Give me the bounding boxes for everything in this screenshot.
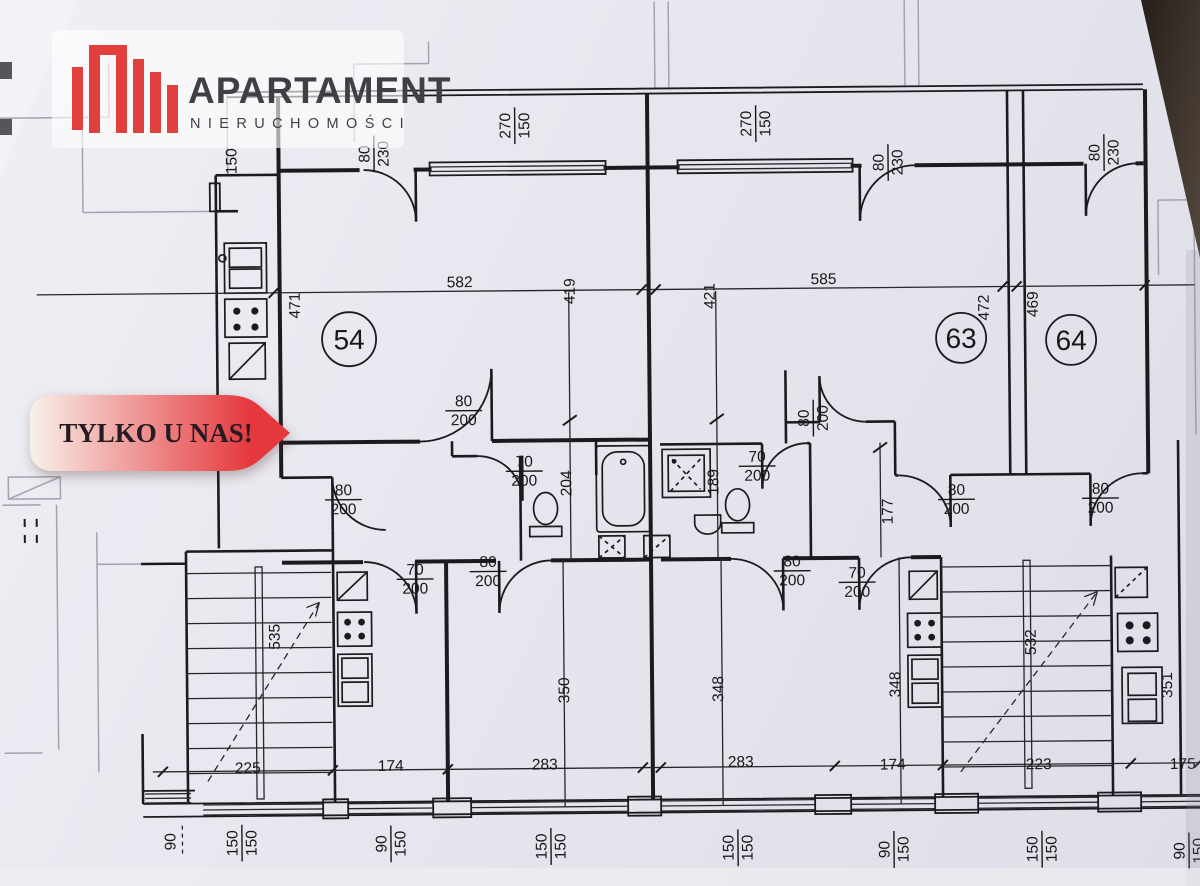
dim-label: 283	[532, 756, 558, 773]
logo-subtitle: NIERUCHOMOŚCI	[190, 114, 411, 132]
svg-text:80: 80	[783, 553, 801, 570]
svg-text:270: 270	[738, 110, 755, 136]
fixtures	[219, 235, 1163, 731]
door-80x200-lower-midright	[731, 558, 783, 610]
dim-label: 80200	[796, 400, 832, 437]
svg-text:283: 283	[532, 756, 558, 773]
svg-text:535: 535	[267, 624, 284, 650]
dim-label: 70200	[839, 565, 876, 601]
dim-label: 283	[728, 754, 754, 771]
dim-label: 80200	[1082, 480, 1119, 516]
svg-text:350: 350	[556, 677, 573, 703]
svg-text:225: 225	[235, 760, 261, 777]
logo: APARTAMENT NIERUCHOMOŚCI	[52, 30, 452, 148]
room-circle-64: 64	[1046, 315, 1096, 365]
svg-text:469: 469	[1025, 291, 1042, 317]
svg-text:472: 472	[976, 295, 993, 321]
scan-shadow-edge	[1186, 250, 1200, 886]
svg-text:419: 419	[562, 278, 579, 304]
svg-text:421: 421	[702, 283, 719, 309]
svg-text:582: 582	[447, 274, 473, 291]
svg-text:348: 348	[710, 676, 727, 702]
svg-text:80: 80	[335, 482, 353, 499]
svg-text:200: 200	[744, 468, 770, 485]
dim-label: 150150	[720, 829, 756, 866]
door-80x230-mid	[860, 165, 915, 220]
svg-text:150: 150	[895, 836, 912, 862]
svg-text:200: 200	[511, 473, 537, 490]
dim-label: 70200	[739, 448, 776, 484]
dim-label: 535	[267, 624, 284, 650]
paper-bottom-edge	[0, 868, 1200, 886]
dim-label: 177	[879, 498, 896, 524]
svg-text:80: 80	[870, 153, 887, 171]
dim-label: 90150	[373, 825, 409, 862]
svg-text:174: 174	[378, 758, 404, 775]
dim-label: 348	[887, 671, 904, 697]
svg-text:150: 150	[533, 833, 550, 859]
svg-text:150: 150	[720, 835, 737, 861]
svg-text:70: 70	[515, 454, 533, 471]
dim-label: 150	[223, 148, 240, 174]
dim-label: 270150	[497, 107, 533, 144]
svg-text:150: 150	[392, 830, 409, 856]
dim-label: 90150	[876, 831, 912, 868]
badge-text: TYLKO U NAS!	[59, 418, 253, 448]
dim-label: 469	[1025, 291, 1042, 317]
window-270x150-left	[430, 161, 606, 176]
room-number-63: 63	[945, 323, 976, 354]
dim-label: 80200	[325, 482, 362, 518]
dim-label: 80200	[445, 393, 482, 429]
svg-text:80: 80	[1086, 144, 1103, 162]
dim-label: 80230	[1086, 134, 1122, 171]
room-number-64: 64	[1055, 325, 1086, 356]
svg-text:270: 270	[497, 112, 514, 138]
svg-text:200: 200	[475, 573, 501, 590]
doors	[330, 163, 1144, 614]
svg-text:150: 150	[1024, 836, 1041, 862]
room-number-54: 54	[333, 324, 364, 355]
window-270x150-right	[678, 159, 853, 174]
svg-text:70: 70	[406, 562, 424, 579]
svg-text:230: 230	[1105, 139, 1122, 165]
logo-title: APARTAMENT	[188, 70, 452, 111]
svg-text:230: 230	[889, 149, 906, 175]
svg-text:348: 348	[887, 671, 904, 697]
svg-text:150: 150	[552, 833, 569, 859]
svg-text:283: 283	[728, 754, 754, 771]
svg-text:223: 223	[1026, 756, 1052, 773]
svg-text:471: 471	[287, 293, 304, 319]
dim-label: 174	[378, 758, 404, 775]
svg-text:150: 150	[224, 830, 241, 856]
dim-label: 204	[558, 470, 575, 496]
promo-badge: TYLKO U NAS!	[18, 385, 328, 495]
dim-label: 150150	[533, 828, 569, 865]
svg-text:150: 150	[1043, 836, 1060, 862]
bottom-wall	[143, 782, 1200, 820]
svg-text:150: 150	[223, 148, 240, 174]
dim-label: 585	[811, 271, 837, 288]
dim-label: 348	[710, 676, 727, 702]
dim-label: 80200	[938, 482, 975, 518]
dim-label: 189	[705, 469, 722, 495]
dim-label: 150150	[224, 825, 260, 862]
dim-label: 223	[1026, 756, 1052, 773]
dim-label: 174	[880, 756, 906, 773]
svg-text:70: 70	[748, 449, 766, 466]
scan-shadow-corner	[1141, 0, 1200, 258]
svg-text:80: 80	[948, 482, 966, 499]
room-circle-54: 54	[322, 312, 376, 366]
svg-text:150: 150	[243, 830, 260, 856]
svg-text:200: 200	[451, 412, 477, 429]
svg-text:150: 150	[739, 834, 756, 860]
kitchen-lower-right	[907, 571, 942, 707]
dim-label: 70200	[397, 561, 434, 597]
dim-label: 532	[1023, 629, 1040, 655]
dim-label: 270150	[738, 105, 774, 142]
windows-top	[210, 159, 853, 212]
dim-label: 150150	[1024, 831, 1060, 868]
kitchen-54	[219, 243, 268, 379]
svg-text:150: 150	[757, 110, 774, 136]
dim-label: 350	[556, 677, 573, 703]
kitchen-64	[1115, 567, 1162, 723]
dim-label: 421	[702, 283, 719, 309]
door-80x230-left	[364, 170, 416, 222]
svg-text:150: 150	[516, 112, 533, 138]
svg-text:189: 189	[705, 469, 722, 495]
svg-text:532: 532	[1023, 629, 1040, 655]
dim-label: 225	[235, 760, 261, 777]
svg-text:90: 90	[162, 833, 179, 851]
svg-text:90: 90	[876, 840, 893, 858]
scanned-floor-plan-page: 54 63 64 8023027015027015080230802301504…	[0, 0, 1200, 886]
svg-text:80: 80	[796, 409, 813, 427]
staircase-right	[941, 560, 1113, 789]
svg-text:80: 80	[1092, 481, 1110, 498]
svg-text:200: 200	[402, 581, 428, 598]
door-80x200-lower-midleft	[499, 560, 551, 612]
svg-text:585: 585	[811, 271, 837, 288]
kitchen-lower-left	[337, 572, 372, 706]
dim-label: 582	[447, 274, 473, 291]
dim-label: 90	[162, 833, 179, 851]
dim-label: 70200	[506, 454, 543, 490]
dim-label: 472	[976, 295, 993, 321]
dim-label: 471	[287, 293, 304, 319]
svg-text:200: 200	[1088, 500, 1114, 517]
svg-text:80: 80	[455, 393, 473, 410]
svg-text:80: 80	[479, 554, 497, 571]
svg-text:204: 204	[558, 470, 575, 496]
door-80x230-right	[1086, 163, 1138, 215]
svg-text:174: 174	[880, 756, 906, 773]
svg-text:200: 200	[779, 572, 805, 589]
svg-text:90: 90	[373, 835, 390, 853]
dim-label: 80230	[870, 144, 906, 181]
svg-text:177: 177	[879, 498, 896, 524]
dim-label: 419	[562, 278, 579, 304]
svg-text:200: 200	[815, 405, 832, 431]
svg-text:351: 351	[1159, 672, 1176, 698]
svg-text:200: 200	[944, 501, 970, 518]
svg-text:200: 200	[331, 501, 357, 518]
dim-label: 351	[1159, 672, 1176, 698]
svg-text:200: 200	[844, 584, 870, 601]
svg-text:70: 70	[848, 565, 866, 582]
